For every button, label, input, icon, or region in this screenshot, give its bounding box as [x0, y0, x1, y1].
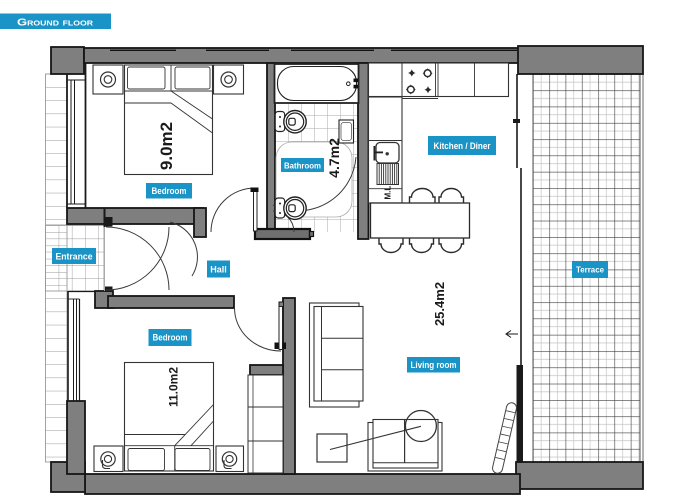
svg-text:4.7m2: 4.7m2 [326, 138, 342, 178]
svg-text:Entrance: Entrance [56, 252, 93, 262]
svg-text:11.0m2: 11.0m2 [167, 367, 181, 407]
svg-text:Kitchen / Diner: Kitchen / Diner [434, 141, 491, 151]
svg-text:9.0m2: 9.0m2 [157, 122, 176, 170]
svg-text:Living room: Living room [411, 360, 457, 370]
svg-text:M.L: M.L [384, 186, 393, 200]
svg-text:Terrace: Terrace [576, 265, 604, 275]
svg-text:Ground floor: Ground floor [17, 17, 93, 29]
svg-text:Bedroom: Bedroom [152, 186, 187, 196]
svg-text:Bedroom: Bedroom [153, 333, 188, 343]
svg-text:Hall: Hall [210, 265, 227, 275]
svg-text:Bathroom: Bathroom [284, 161, 321, 171]
svg-text:25.4m2: 25.4m2 [432, 282, 447, 326]
